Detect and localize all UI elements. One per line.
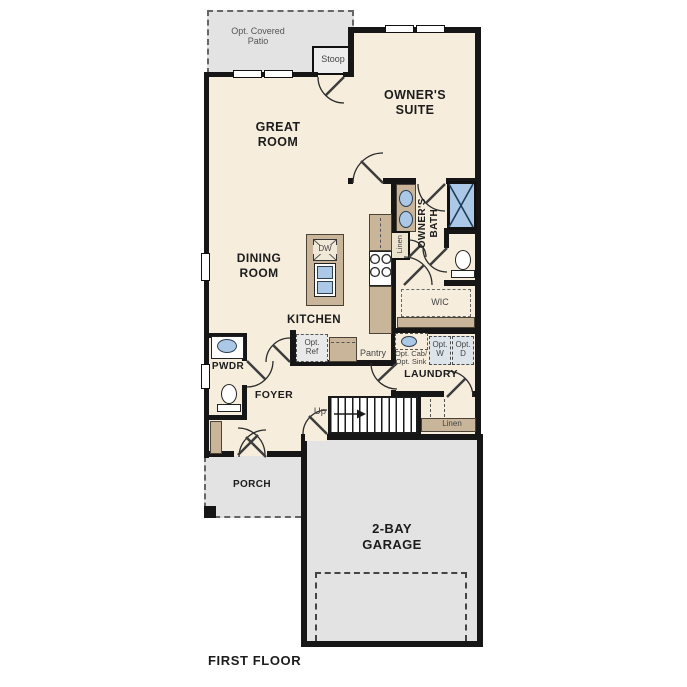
garage-entry-opening [305,433,327,441]
vanity-sink-icon [399,190,413,207]
sink-basin-icon [317,281,333,294]
wall [348,178,353,184]
pantry-label: Pantry [354,348,392,358]
kitchen-label: KITCHEN [280,313,348,327]
window [233,70,262,78]
cabinet-depth-line [380,218,381,248]
dining-room-label: DINING ROOM [226,251,292,280]
garage-door-outline [315,572,467,641]
toilet-icon [221,384,237,404]
window [416,25,445,33]
counter-depth-line [331,342,355,343]
nook-counter [329,337,357,362]
toilet-icon [455,250,471,270]
wall [267,451,301,457]
toilet-tank [451,270,475,278]
coat-closet-shelf [210,421,222,454]
wall [348,27,354,77]
wic-shelf [397,317,475,328]
pwdr-label: PWDR [209,361,247,373]
staircase [328,396,418,434]
owners-suite-floor [348,27,481,77]
patio-label: Opt. Covered Patio [222,26,294,46]
linen-shelf-line [444,399,445,417]
owners-bath-label: OWNER'S BATH [417,192,441,254]
garage-label: 2-BAY GARAGE [347,521,437,553]
wall [209,415,247,420]
wall [472,391,481,397]
linen-bath-label: Linen [396,230,404,258]
wall [348,27,481,33]
opt-washer-label: Opt. W [429,341,451,359]
window [264,70,293,78]
opt-cab-sink-label: Opt. Cab/ Opt. Sink [388,350,434,367]
wall [242,385,247,415]
toilet-tank [217,404,241,412]
great-room-label: GREAT ROOM [246,120,310,151]
floor-plan-canvas: Opt. Covered Patio Stoop OWNER'S SUITE G… [0,0,687,687]
owners-suite-label: OWNER'S SUITE [372,88,458,119]
foyer-label: FOYER [248,389,300,402]
plan-title: FIRST FLOOR [208,653,328,669]
window [201,253,210,281]
laundry-sink-icon [401,336,417,347]
dishwasher-label: DW [313,245,337,254]
stoop-label: Stoop [314,54,352,64]
wall [444,280,481,286]
sink-basin-icon [317,266,333,279]
stairs-up-label: Up [310,407,330,418]
linen-shelf-line [430,399,431,417]
linen-hall-label: Linen [432,420,472,429]
wall [444,228,449,248]
shower-icon [447,181,477,230]
pwdr-sink-icon [217,339,237,353]
opt-dryer-label: Opt. D [452,341,474,359]
kitchen-counter [369,286,392,334]
vanity-sink-icon [399,211,413,228]
porch-pillar [204,506,216,518]
wic-label: WIC [424,297,456,307]
range-icon [369,251,392,286]
opt-ref-label: Opt. Ref [298,339,326,357]
window [385,25,414,33]
porch-label: PORCH [226,479,278,491]
laundry-label: LAUNDRY [396,368,466,381]
